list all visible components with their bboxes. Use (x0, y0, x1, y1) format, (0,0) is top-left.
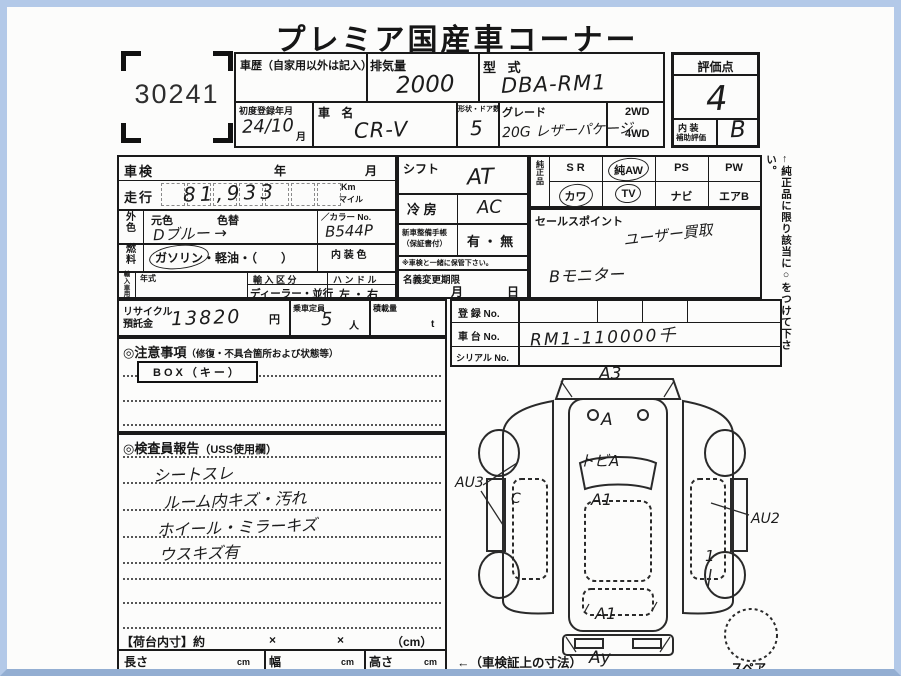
grade-value: 20G レザーパケージ (502, 118, 633, 143)
width-label: 幅 (269, 653, 281, 670)
oem-item-tv-circled: TV (621, 188, 635, 200)
mark-roof: A1 (590, 490, 612, 509)
manual-label-1: 新車整備手帳 (402, 227, 447, 238)
cargo-label: 【荷台内寸】約 (121, 633, 205, 650)
length-unit: cm (237, 657, 250, 667)
cautions-section: ◎注意事項（修復・不具合箇所および状態等） BOX（キー） (117, 337, 447, 433)
oem-item-leather-circled: カワ (565, 188, 587, 204)
chassis-no-value: RM1-110000千 (530, 320, 678, 350)
inspection-block: 車検 年 月 走行 81,933 Km マイル 外色 元色 色替 Dブルー → … (117, 155, 397, 299)
oem-item-sr: S R (549, 162, 602, 174)
corner-mark (121, 123, 141, 143)
load-unit: t (431, 319, 434, 330)
import-class-label: 輸 入 区 分 (253, 273, 297, 286)
cautions-header-sub: （修復・不具合箇所および状態等） (186, 349, 338, 360)
inspector-header: ◎検査員報告 (123, 441, 199, 456)
mark-left-door: C (511, 491, 521, 507)
capacity-value: 5 (321, 309, 333, 330)
cowl-circle-left (588, 410, 598, 420)
ext-color-label: 外色 (122, 213, 140, 234)
shaken-month-label: 月 (365, 162, 377, 179)
handle-label: ハ ン ド ル (333, 273, 377, 286)
cargo-times-1: × (269, 633, 276, 647)
ac-label: 冷 房 (407, 199, 437, 218)
cowl-circle-right (638, 410, 648, 420)
key-box-label: BOX（キー） (137, 361, 258, 383)
spare-tire-circle (725, 609, 777, 661)
oem-item-airbag: エアB (708, 188, 760, 204)
mark-bottom: Ay (588, 648, 612, 668)
cargo-unit: （cm） (391, 633, 432, 650)
interior-score-value: B (730, 117, 747, 144)
shift-value: AT (467, 165, 495, 191)
auction-sheet: プレミア国産車コーナー 30241 車歴（自家用以外は記入） 排気量 2000 … (0, 0, 901, 676)
interior-score-label-2: 補助評価 (676, 132, 706, 143)
grade-label: グレード (502, 104, 546, 120)
fuel-gasoline-circled: ガソリン (155, 249, 203, 266)
report-line-4: ウスキズ有 (159, 539, 240, 566)
score-box: 評価点 4 内 装 補助評価 B (671, 52, 760, 148)
lot-number: 30241 (121, 79, 233, 110)
report-line-1: シートスレ (153, 460, 234, 487)
roof-interior-dashed (585, 501, 651, 581)
width-unit: cm (341, 657, 354, 667)
first-reg-value: 24/10 (242, 115, 295, 138)
mark-hood: A (600, 410, 613, 430)
interior-color-label: 内 装 色 (331, 246, 367, 261)
first-reg-month: 月 (296, 128, 306, 143)
transfer-month: 月 (451, 283, 463, 300)
recycle-label-2: 預託金 (123, 315, 153, 330)
spare-label: スペア (731, 661, 766, 675)
car-diagram-svg: A3 A トビA A1 AU3 C AU2 1 A1 Ay スペア (453, 363, 785, 676)
ac-value: AC (477, 197, 503, 219)
equipment-block: シフト AT 冷 房 AC 新車整備手帳 （保証書付） 有 ・ 無 ※車検と一緒… (397, 155, 529, 299)
inspector-report-section: ◎検査員報告（USS使用欄） シートスレ ルーム内キズ・汚れ ホイール・ミラーキ… (117, 433, 447, 676)
shaken-label: 車検 (124, 161, 154, 180)
displacement-label: 排気量 (370, 57, 406, 74)
cautions-header: ◎注意事項 (123, 345, 186, 360)
ext-color-value: Dブルー → (153, 222, 228, 246)
year-model-label: 年式 (140, 273, 156, 284)
score-label: 評価点 (674, 58, 757, 75)
right-front-wheel (705, 430, 745, 476)
mileage-unit-mile: マイル (339, 194, 363, 205)
report-line-2: ルーム内キズ・汚れ (163, 485, 307, 514)
transfer-day: 日 (507, 283, 519, 300)
mark-left-side: AU3 (454, 475, 484, 491)
oem-item-ps: PS (655, 162, 708, 174)
drive-2wd: 2WD (625, 106, 649, 118)
mileage-value: 81,933 (183, 179, 278, 206)
fuel-label: 燃料 (122, 245, 140, 266)
load-label: 積載量 (373, 303, 397, 314)
manual-label-2: （保証書付） (402, 238, 447, 249)
shape-doors-label: 形状・ドア数 (458, 104, 500, 114)
shape-doors-value: 5 (470, 116, 484, 140)
capacity-unit: 人 (349, 317, 359, 332)
drive-4wd: 4WD (625, 128, 649, 140)
fuel-other-options: ・軽油・（ ） (203, 251, 293, 265)
length-label: 長さ (124, 653, 148, 670)
oem-item-pw: PW (708, 162, 760, 174)
corner-mark (213, 123, 233, 143)
height-unit: cm (424, 657, 437, 667)
corner-mark (213, 51, 233, 71)
sales-note-2: Bモニター (549, 261, 625, 288)
registration-block: 登 録 No. 車 台 No. RM1-110000千 シリアル No. (450, 299, 782, 367)
mark-right-panel: 1 (705, 547, 715, 565)
displacement-value: 2000 (396, 71, 455, 99)
sales-note-1: ユーザー買取 (622, 219, 714, 251)
recycle-row: リサイクル 預託金 13820 円 乗車定員 5 人 積載量 t (117, 299, 447, 337)
rear-light-right (633, 639, 661, 648)
rear-light-left (575, 639, 603, 648)
sales-point-box: セールスポイント ユーザー買取 Bモニター (529, 208, 762, 299)
color-no-value: B544P (325, 221, 374, 241)
score-value: 4 (705, 79, 728, 120)
height-label: 高さ (369, 653, 393, 670)
shift-label: シフト (403, 160, 439, 177)
recycle-unit: 円 (269, 311, 280, 327)
inspector-header-sub: （USS使用欄） (199, 444, 277, 456)
mileage-unit-km: Km (341, 182, 356, 192)
manual-note: ※車検と一緒に保管下さい。 (402, 258, 493, 268)
manual-value: 有 ・ 無 (467, 231, 513, 250)
mark-rear: A1 (594, 604, 616, 623)
car-name-label: 車 名 (318, 104, 357, 121)
lot-number-box: 30241 (121, 51, 233, 143)
oem-item-navi: ナビ (655, 188, 708, 204)
recycle-value: 13820 (171, 306, 242, 330)
mileage-label: 走行 (124, 187, 154, 206)
oem-parts-grid: 純正品 S R 純AW PS PW カワ TV ナビ エアB (529, 155, 762, 208)
shaken-year-label: 年 (274, 162, 286, 179)
oem-item-aw-circled: 純AW (614, 162, 643, 178)
rear-window-dashed (583, 589, 653, 615)
model-code-value: DBA-RM1 (501, 70, 607, 98)
sales-point-label: セールスポイント (535, 213, 623, 229)
mark-windshield: トビA (579, 452, 619, 470)
corner-mark (121, 51, 141, 71)
vehicle-grid: 車歴（自家用以外は記入） 排気量 2000 型 式 DBA-RM1 初度登録年月… (234, 52, 665, 148)
reg-no-label: 登 録 No. (458, 305, 500, 320)
import-label: 輸入車用 (121, 272, 133, 299)
history-label: 車歴（自家用以外は記入） (240, 57, 372, 73)
mark-right-side: AU2 (750, 511, 780, 527)
car-name-value: CR-V (354, 117, 409, 143)
cargo-times-2: × (337, 633, 344, 647)
oem-label: 純正品 (533, 161, 547, 186)
mark-top: A3 (598, 364, 621, 384)
chassis-no-label: 車 台 No. (458, 328, 500, 343)
left-front-wheel (479, 430, 519, 476)
